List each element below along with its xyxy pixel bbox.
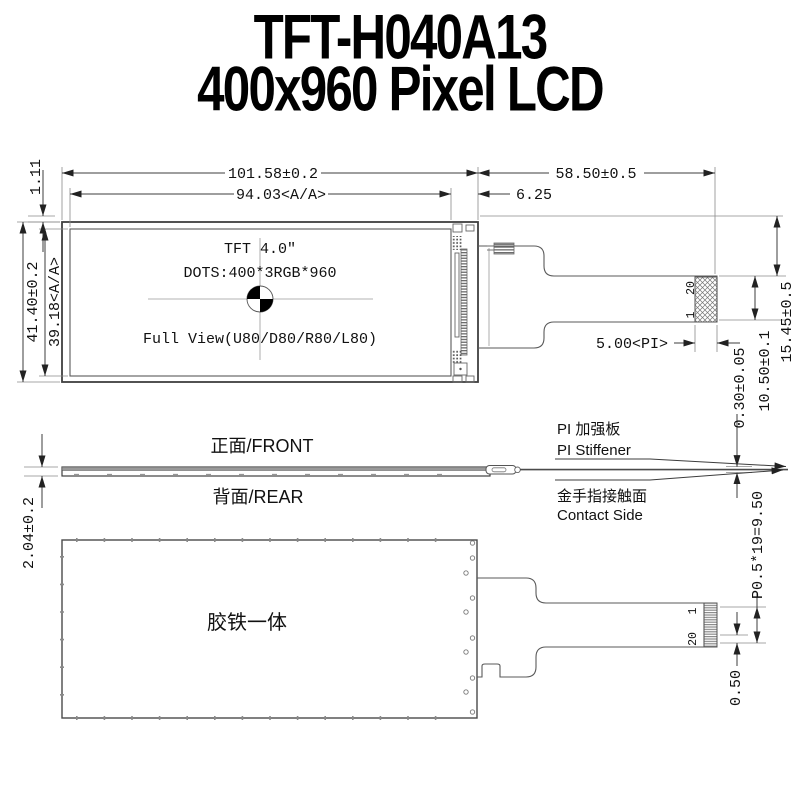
dim-active-width: 94.03<A/A>	[236, 187, 326, 204]
target-quadrant	[260, 299, 273, 312]
rear-body-label: 胶铁一体	[207, 611, 287, 634]
dim-outer-width: 101.58±0.2	[228, 166, 318, 183]
dim-fpc-thickness: 0.30±0.05	[732, 347, 749, 428]
contact-label-en: Contact Side	[557, 507, 643, 524]
pin-20-label-top-view: 20	[685, 281, 698, 295]
front-label: 正面/FRONT	[211, 436, 314, 456]
pin-1-label-rear-view: 1	[687, 607, 700, 614]
ledge-details	[452, 224, 474, 382]
bottom-view-dimensions: P0.5*19=9.50 0.50	[720, 491, 767, 706]
bottom-view: 胶铁一体 1 20	[62, 540, 717, 718]
side-view: 正面/FRONT 背面/REAR	[62, 436, 788, 507]
dim-module-thickness: 2.04±0.2	[21, 497, 38, 569]
viewing-text: Full View(U80/D80/R80/L80)	[143, 331, 377, 348]
dim-ledge-width: 6.25	[516, 187, 552, 204]
contact-zone-hatched	[695, 277, 717, 322]
top-view-dimensions: 101.58±0.2 58.50±0.5 94.03<A/A> 6.25 1.1…	[17, 159, 796, 412]
stiffener-label-en: PI Stiffener	[557, 442, 631, 459]
technical-drawing: 20 1 TFT 4.0″ DOTS:400*3RGB*960 Full Vie…	[0, 0, 800, 800]
stiffener-label-cn: PI 加强板	[557, 420, 620, 438]
dim-active-height: 39.18<A/A>	[47, 257, 64, 347]
panel-glass-layer	[62, 467, 490, 470]
dim-outer-height: 41.40±0.2	[25, 261, 42, 342]
side-view-dimensions: 2.04±0.2 0.30±0.05 PI 加强板 PI Stiffener 金…	[21, 347, 786, 569]
backlight-connector	[494, 243, 514, 254]
fpc-fold	[486, 466, 516, 475]
fpc-rear-outline	[477, 578, 704, 677]
pin-20-label-rear-view: 20	[687, 632, 700, 646]
dim-pi-length: 5.00<PI>	[596, 336, 668, 353]
dim-contact-drop: 15.45±0.5	[779, 281, 796, 362]
dots-text: DOTS:400*3RGB*960	[183, 265, 336, 282]
contact-label-cn: 金手指接触面	[557, 488, 647, 505]
dim-pitch: 0.50	[728, 670, 745, 706]
dim-fpc-length: 58.50±0.5	[555, 166, 636, 183]
dim-top-gap: 1.11	[28, 159, 45, 195]
target-quadrant	[247, 286, 260, 299]
driver-ic-bar	[461, 249, 467, 355]
rear-label: 背面/REAR	[212, 487, 303, 507]
top-view: 20 1 TFT 4.0″ DOTS:400*3RGB*960 Full Vie…	[62, 222, 717, 382]
bonding-pad-block	[452, 236, 462, 250]
gold-finger-contacts	[704, 603, 717, 647]
dim-connector-height: 10.50±0.1	[757, 330, 774, 411]
fpc-plan: 20 1	[478, 243, 717, 348]
dim-pitch-total: P0.5*19=9.50	[750, 491, 767, 599]
drawing-sheet: TFT-H040A13 400x960 Pixel LCD	[0, 0, 800, 800]
screen-size-text: TFT 4.0″	[224, 241, 296, 258]
pin-1-label-top-view: 1	[685, 311, 698, 318]
